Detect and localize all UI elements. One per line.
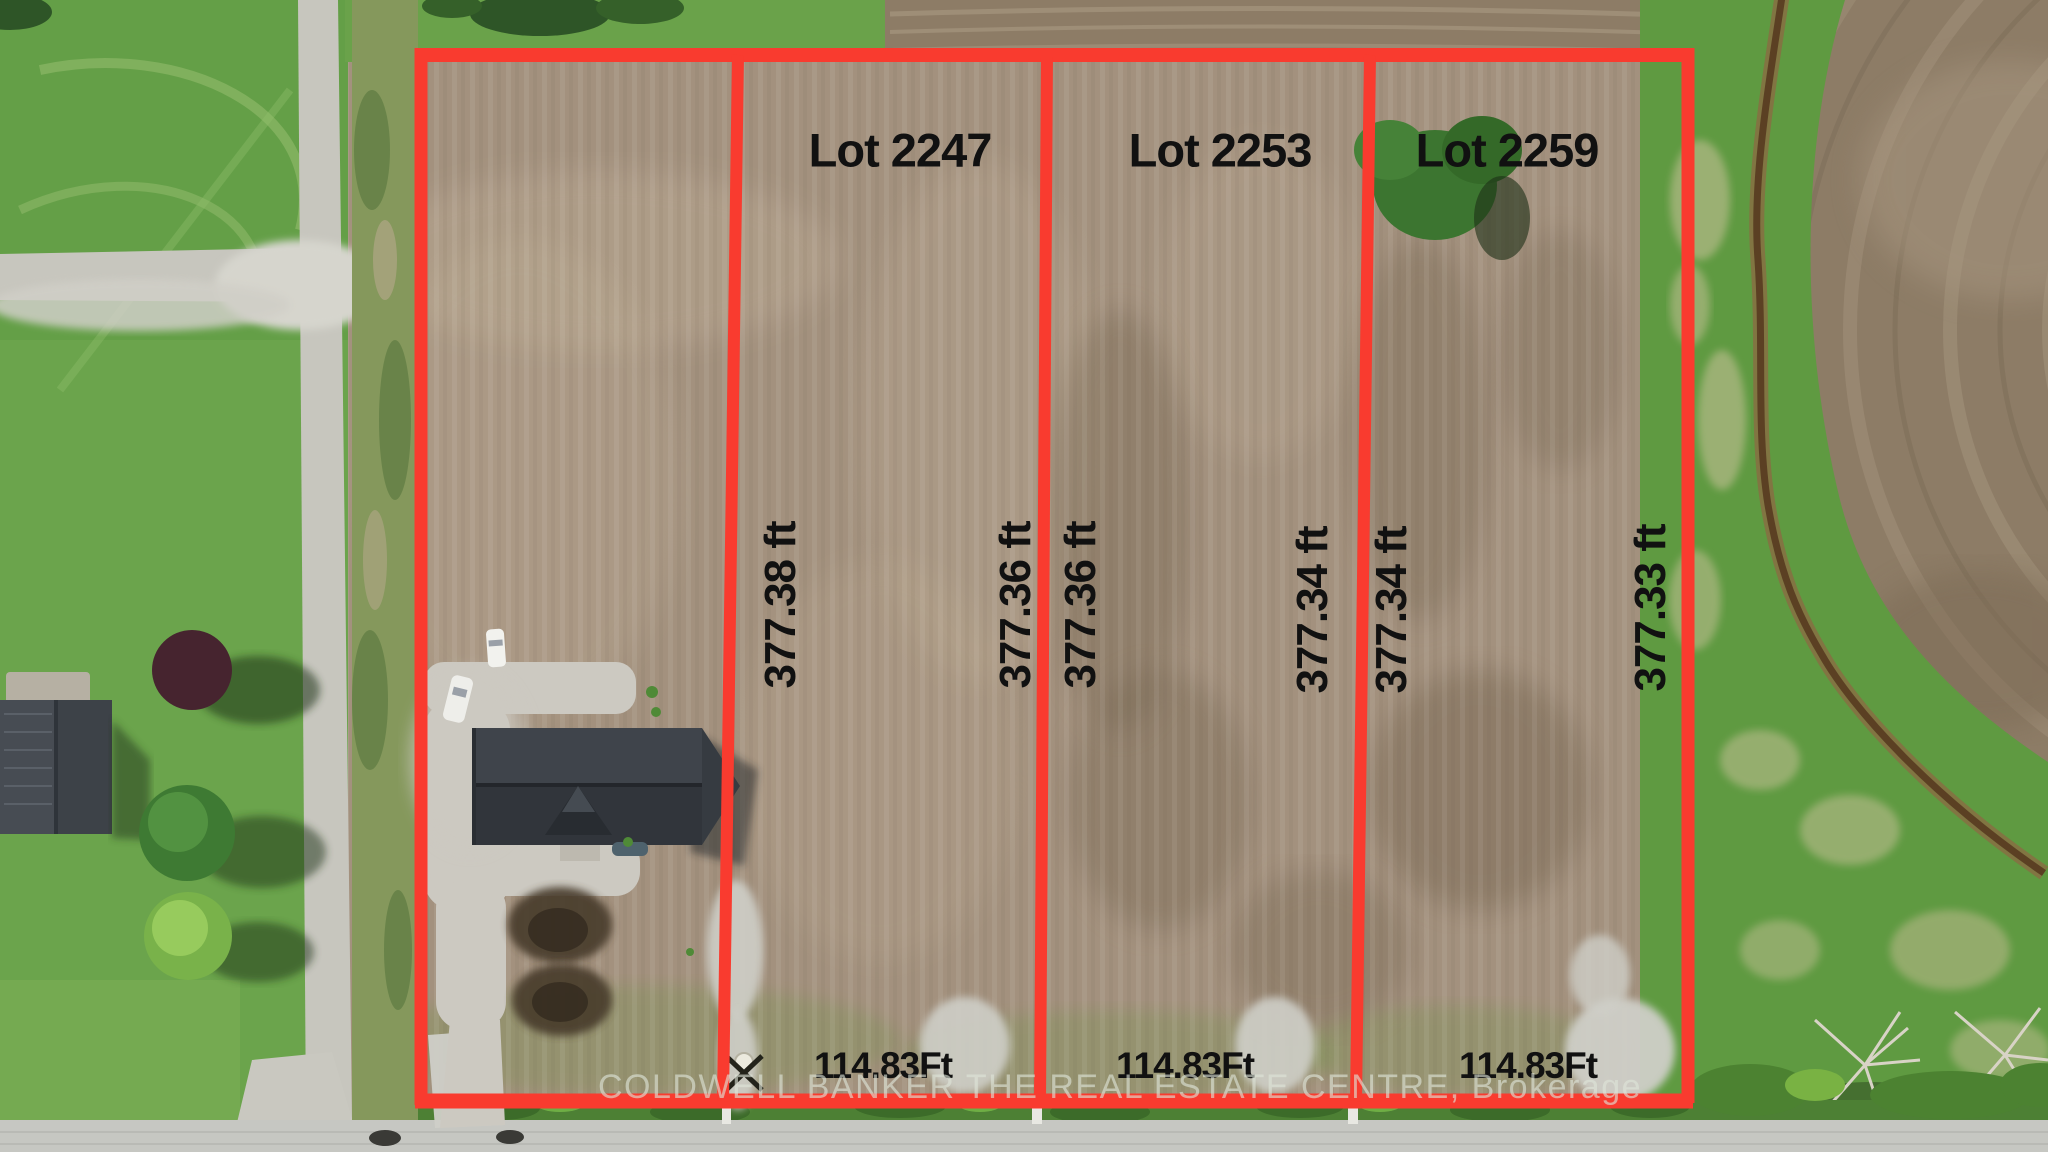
lot-2247-east-dimension: 377.36 ft: [991, 521, 1041, 688]
lot-2259-east-dimension: 377.33 ft: [1626, 524, 1676, 691]
lot-2259-west-dimension: 377.34 ft: [1367, 526, 1417, 693]
lot-divider-1: [723, 55, 738, 1101]
lot-2253-west-dimension: 377.36 ft: [1056, 521, 1106, 688]
lot-2253-east-dimension: 377.34 ft: [1288, 526, 1338, 693]
brokerage-watermark: COLDWELL BANKER THE REAL ESTATE CENTRE, …: [598, 1068, 1642, 1107]
lot-2247-west-dimension: 377.38 ft: [756, 521, 806, 688]
lot-2259-label: Lot 2259: [1416, 123, 1599, 178]
lot-2253-label: Lot 2253: [1129, 123, 1312, 178]
aerial-photo-scene: Lot 2247 Lot 2253 Lot 2259 377.38 ft 377…: [0, 0, 2048, 1152]
lot-divider-2: [1040, 55, 1047, 1101]
lot-2247-label: Lot 2247: [809, 123, 992, 178]
